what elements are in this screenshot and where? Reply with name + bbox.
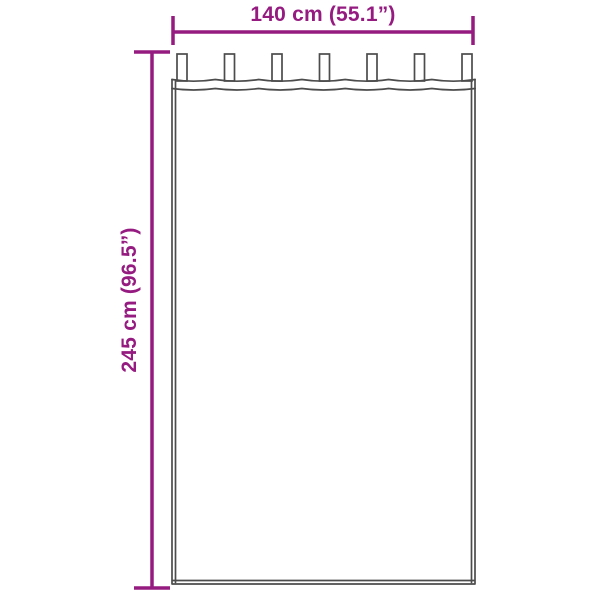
- curtain-tabs: [177, 54, 472, 81]
- curtain-tab: [177, 54, 187, 81]
- curtain-tab: [272, 54, 282, 81]
- curtain-tab: [225, 54, 235, 81]
- curtain-dimension-diagram: 140 cm (55.1”) 245 cm (96.5”): [0, 0, 600, 600]
- height-dimension-label: 245 cm (96.5”): [118, 227, 142, 372]
- width-dimension-label: 140 cm (55.1”): [173, 3, 473, 27]
- curtain-tab: [367, 54, 377, 81]
- curtain-tab: [462, 54, 472, 81]
- diagram-drawing: [0, 0, 600, 600]
- curtain-hem-lines: [173, 81, 474, 583]
- curtain-tab: [415, 54, 425, 81]
- curtain: [172, 54, 475, 584]
- curtain-body-outline: [172, 80, 475, 585]
- curtain-tab: [320, 54, 330, 81]
- curtain-header-band-line: [172, 89, 475, 91]
